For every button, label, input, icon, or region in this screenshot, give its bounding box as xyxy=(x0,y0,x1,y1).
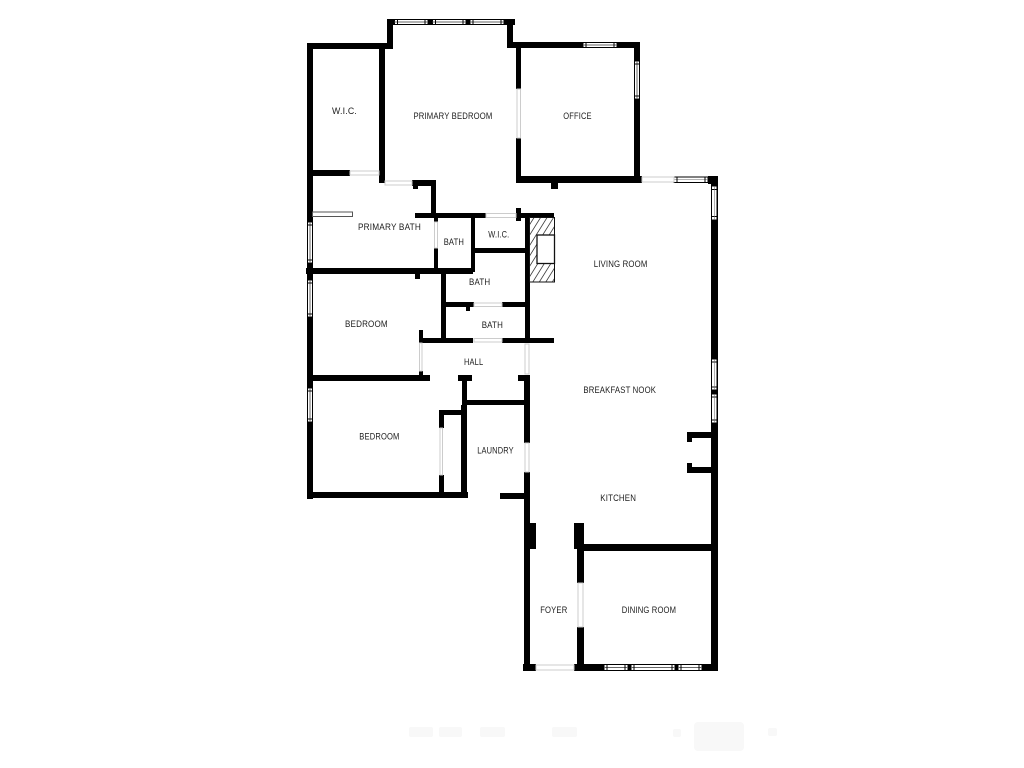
svg-text:W.I.C.: W.I.C. xyxy=(332,105,357,116)
svg-text:FOYER: FOYER xyxy=(540,604,567,615)
svg-text:BATH: BATH xyxy=(469,276,490,287)
svg-text:KITCHEN: KITCHEN xyxy=(600,492,636,503)
svg-text:BEDROOM: BEDROOM xyxy=(345,318,388,329)
svg-text:W.I.C.: W.I.C. xyxy=(488,229,509,240)
svg-text:OFFICE: OFFICE xyxy=(563,110,591,121)
svg-text:PRIMARY BEDROOM: PRIMARY BEDROOM xyxy=(414,110,493,121)
svg-text:BREAKFAST NOOK: BREAKFAST NOOK xyxy=(583,384,656,395)
svg-text:HALL: HALL xyxy=(464,356,483,367)
svg-text:BATH: BATH xyxy=(482,319,503,330)
svg-text:LIVING ROOM: LIVING ROOM xyxy=(594,258,648,269)
svg-text:BATH: BATH xyxy=(444,236,464,247)
svg-text:LAUNDRY: LAUNDRY xyxy=(477,445,514,456)
svg-text:DINING ROOM: DINING ROOM xyxy=(622,604,676,615)
svg-text:PRIMARY BATH: PRIMARY BATH xyxy=(358,221,421,232)
svg-text:BEDROOM: BEDROOM xyxy=(359,430,399,441)
